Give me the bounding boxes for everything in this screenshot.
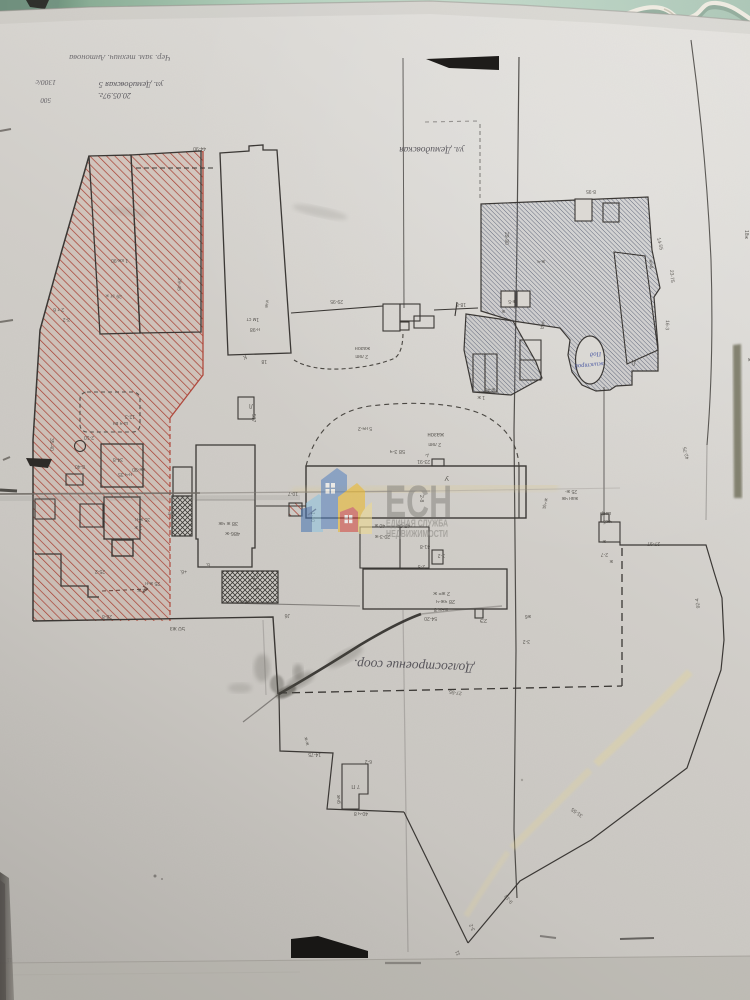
svg-text:3-2: 3-2	[438, 552, 445, 558]
svg-text:25-2: 25-2	[95, 568, 105, 574]
svg-text:+б.: +б.	[180, 568, 187, 574]
svg-text:ж-ч: ж-ч	[537, 258, 545, 264]
svg-text:2-7: 2-7	[601, 551, 608, 557]
svg-text:б.: б.	[206, 561, 210, 567]
svg-text:7 П: 7 П	[351, 783, 360, 789]
svg-text:1300/с: 1300/с	[35, 78, 56, 87]
svg-text:Л: Л	[249, 402, 253, 408]
svg-text:НЕДВИЖИМОСТИ: НЕДВИЖИМОСТИ	[386, 529, 448, 540]
svg-text:н-ч 35: н-ч 35	[118, 471, 132, 477]
svg-text:н-98: н-98	[250, 326, 260, 332]
svg-text:Д: Д	[632, 359, 636, 365]
svg-text:3-2: 3-2	[63, 316, 70, 322]
svg-text:ж-5: ж-5	[508, 298, 516, 304]
svg-text:1м ст: 1м ст	[246, 316, 259, 322]
svg-text:28-8: 28-8	[102, 613, 112, 619]
svg-text:10-7: 10-7	[288, 490, 298, 496]
svg-text:50 жз: 50 жз	[170, 625, 185, 631]
svg-text:486-ж: 486-ж	[225, 530, 240, 536]
svg-text:18-8: 18-8	[456, 301, 466, 307]
svg-text:жазон: жазон	[355, 345, 370, 351]
svg-text:2-5: 2-5	[418, 563, 425, 569]
svg-text:25 ж-: 25 ж-	[565, 488, 577, 494]
svg-text:41-8: 41-8	[420, 543, 430, 549]
svg-text:5 нч-2: 5 нч-2	[358, 425, 372, 431]
svg-text:ж-45: ж-45	[484, 386, 495, 392]
svg-text:кж-90: кж-90	[132, 466, 145, 472]
svg-text:жазон: жазон	[427, 431, 444, 437]
svg-text:Чер. зам. технич. Антонова: Чер. зам. технич. Антонова	[69, 53, 171, 63]
svg-text:шиф: шиф	[600, 510, 611, 516]
svg-text:14-75: 14-75	[308, 751, 321, 757]
svg-text:Под: Под	[589, 350, 602, 358]
svg-text:2 ж: 2 ж	[134, 524, 142, 530]
svg-text:ул. Демидовская: ул. Демидовская	[399, 144, 465, 155]
svg-text:ж6: ж6	[525, 613, 531, 619]
svg-text:48 ж: 48 ж	[239, 598, 250, 604]
svg-text:23-75: 23-75	[668, 270, 675, 283]
svg-text:16-3: 16-3	[664, 320, 670, 330]
svg-text:44-90: 44-90	[193, 145, 206, 151]
svg-text:3-2: 3-2	[523, 638, 530, 644]
svg-text:жчб: жчб	[335, 795, 341, 804]
svg-text:35 ж-н: 35 ж-н	[135, 516, 150, 522]
svg-text:54-20: 54-20	[424, 615, 437, 621]
svg-text:1 ж: 1 ж	[477, 394, 485, 400]
svg-text:34-8: 34-8	[113, 456, 123, 462]
svg-text:2 т б: 2 т б	[53, 306, 64, 312]
svg-text:2 лип: 2 лип	[355, 353, 368, 359]
svg-text:2 лип: 2 лип	[428, 441, 441, 447]
svg-text:6-2: 6-2	[365, 758, 372, 764]
svg-text:39 эт ж: 39 эт ж	[105, 292, 122, 299]
svg-text:517: 517	[250, 414, 256, 423]
svg-text:27-97: 27-97	[647, 540, 660, 546]
svg-text:12-3: 12-3	[125, 413, 135, 419]
svg-text:18: 18	[261, 358, 267, 364]
svg-text:20.05.97г.: 20.05.97г.	[98, 91, 131, 100]
svg-text:29-90: 29-90	[503, 232, 509, 245]
svg-text:23-91: 23-91	[417, 458, 430, 464]
svg-text:2 ж= ж: 2 ж= ж	[433, 590, 450, 596]
svg-text:40 ж: 40 ж	[374, 522, 385, 528]
svg-text:25 ж-н: 25 ж-н	[145, 580, 160, 586]
svg-text:ж+ж-8: ж+ж-8	[434, 606, 448, 612]
svg-text:35-40: 35-40	[48, 438, 54, 451]
svg-text:чжд: чжд	[539, 320, 546, 330]
svg-text:2 ж: 2 ж	[137, 587, 145, 593]
svg-text:40-ч 8: 40-ч 8	[354, 810, 368, 816]
svg-text:500: 500	[40, 96, 51, 104]
svg-text:58 3-ч: 58 3-ч	[389, 448, 405, 454]
svg-text:кча: кча	[263, 300, 270, 308]
svg-text:Јб: Јб	[285, 612, 291, 618]
svg-text:ш-ч вн: ш-ч вн	[113, 420, 128, 426]
svg-text:29-45: 29-45	[176, 278, 182, 291]
svg-text:ул. Демидовская 5: ул. Демидовская 5	[99, 80, 164, 90]
svg-text:чжб: чжб	[603, 518, 612, 524]
svg-text:ЕДИНАЯ СЛУЖБА: ЕДИНАЯ СЛУЖБА	[386, 519, 448, 530]
svg-text:2-10: 2-10	[84, 434, 94, 440]
svg-text:жан чж: жан чж	[561, 495, 578, 501]
svg-text:18ж: 18ж	[743, 230, 749, 240]
svg-text:8-40: 8-40	[75, 463, 85, 469]
svg-text:7нг: 7нг	[167, 510, 175, 516]
svg-text:29-95: 29-95	[330, 298, 343, 304]
svg-text:2Э: 2Э	[480, 617, 487, 623]
svg-text:38 ж чж: 38 ж чж	[218, 520, 238, 526]
svg-text:28 чж-ч: 28 чж-ч	[436, 598, 455, 604]
svg-text:1 кж-90: 1 кж-90	[111, 257, 128, 263]
svg-text:8-95: 8-95	[586, 188, 596, 194]
